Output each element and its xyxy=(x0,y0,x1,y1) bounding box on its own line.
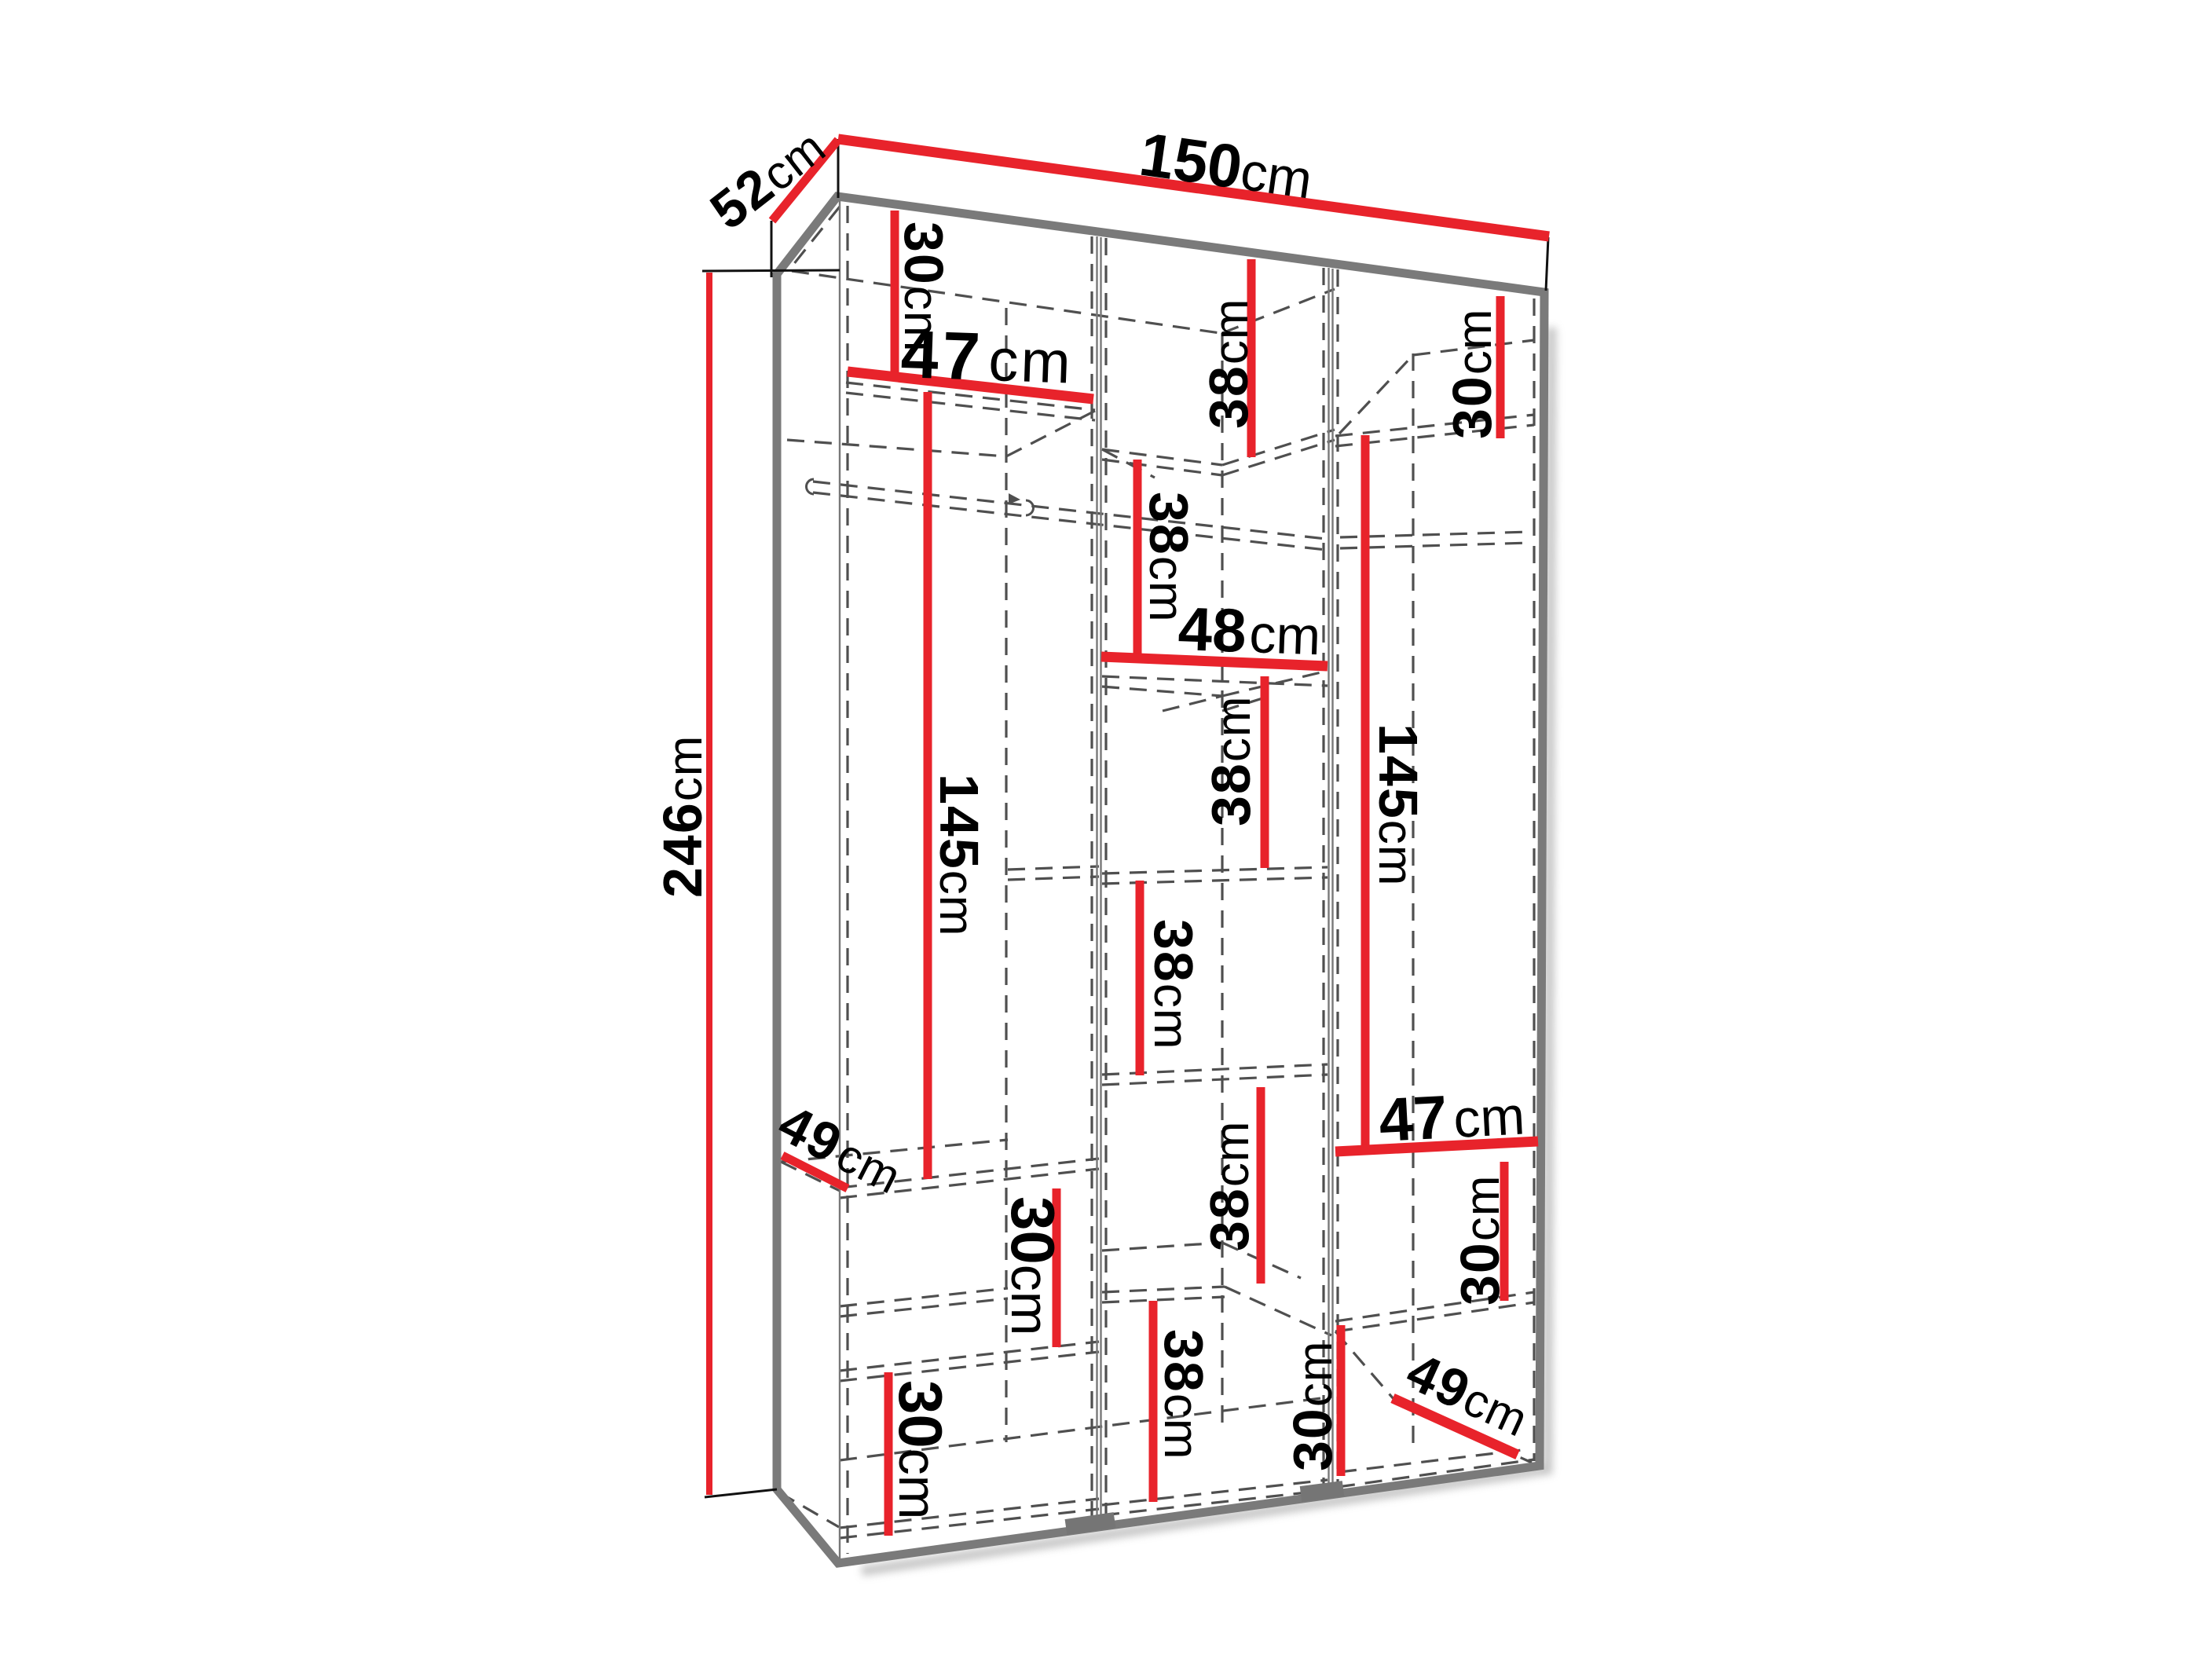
svg-text:38cm: 38cm xyxy=(1199,1120,1260,1251)
svg-text:30cm: 30cm xyxy=(886,1380,955,1519)
svg-text:246cm: 246cm xyxy=(652,735,713,898)
svg-text:30cm: 30cm xyxy=(1441,308,1503,439)
svg-text:38cm: 38cm xyxy=(1198,298,1259,429)
svg-text:38cm: 38cm xyxy=(1153,1329,1214,1460)
svg-text:30cm: 30cm xyxy=(998,1196,1068,1335)
svg-text:38cm: 38cm xyxy=(1200,695,1262,826)
svg-text:30cm: 30cm xyxy=(1449,1174,1511,1306)
svg-text:38cm: 38cm xyxy=(1143,919,1204,1050)
svg-text:145cm: 145cm xyxy=(1368,723,1429,886)
svg-text:30cm: 30cm xyxy=(1282,1340,1343,1471)
svg-text:145cm: 145cm xyxy=(928,774,990,936)
